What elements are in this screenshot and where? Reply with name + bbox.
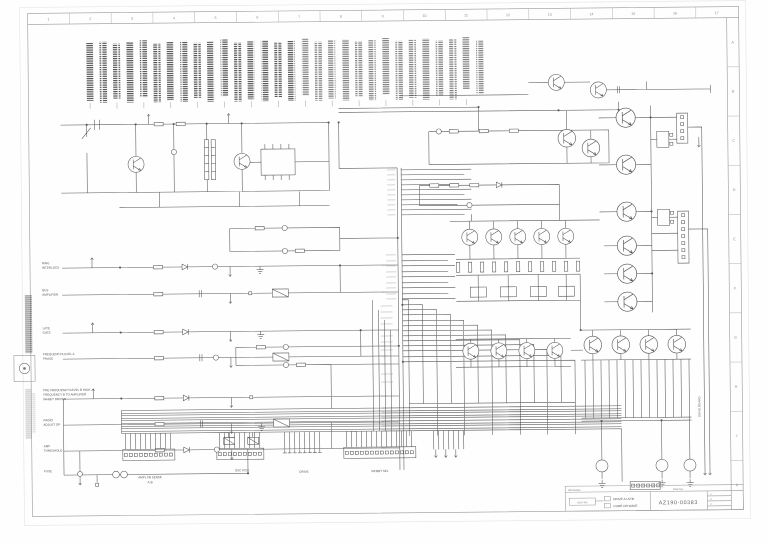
signal-stripes — [86, 37, 484, 109]
revision-entry: B — [710, 499, 712, 501]
signal-label: RING — [42, 261, 50, 265]
grid-letter: H — [735, 385, 738, 389]
grid-letter: A — [731, 40, 734, 44]
grid-number: 5 — [215, 16, 217, 20]
connector-labels: AMPL FB SENSE A-B OSC PICK DRIVE INHIBIT… — [138, 467, 389, 484]
grid-number: 1 — [48, 18, 50, 22]
grid-letter: B — [732, 90, 735, 94]
grid-number: 7 — [298, 15, 300, 19]
grid-number: 14 — [589, 12, 593, 16]
side-note: DRIVE BOARD — [697, 395, 701, 417]
revision-entry: A — [710, 493, 712, 496]
terminals — [92, 116, 694, 493]
signal-label: GATE — [43, 331, 51, 335]
grid-number: 9 — [382, 14, 384, 18]
grid-number: 12 — [506, 13, 510, 17]
scanned-schematic-page: 1 2 3 4 5 6 7 8 9 10 11 12 13 14 15 16 1… — [0, 0, 768, 543]
grid-letter: J — [736, 434, 738, 438]
grid-number: 4 — [173, 16, 175, 20]
left-signal-labels: RING INTERLOCK BUS AMPLIFIER LATE GATE F… — [42, 261, 91, 473]
signal-label: THRESHOLD — [44, 449, 63, 453]
grid-number: 3 — [131, 17, 133, 21]
grid-letter: K — [736, 483, 739, 487]
title-block: REVISIONS DWG NO. ASSY NO DRIVE A LSTB C… — [565, 485, 743, 512]
fold-ruler — [24, 295, 35, 438]
diodes-caps — [180, 86, 623, 452]
signal-label: LATE — [43, 326, 50, 330]
drawing-number: AZ190-00383 — [659, 500, 698, 506]
grid-number: 16 — [673, 11, 677, 15]
schematic-sheet-scan: 1 2 3 4 5 6 7 8 9 10 11 12 13 14 15 16 1… — [0, 0, 768, 543]
signal-label: INTERLOCK — [42, 266, 59, 270]
signal-label: AMP — [44, 444, 51, 448]
grid-letter: F — [734, 286, 737, 290]
grid-letter: D — [733, 188, 736, 192]
signal-label: AMPLIFIER — [42, 293, 59, 297]
connector-label: INHIBIT SEL — [371, 469, 388, 473]
grid-number: 6 — [256, 16, 258, 20]
title-block-header: REVISIONS — [568, 490, 581, 492]
grid-strip-top: 1 2 3 4 5 6 7 8 9 10 11 12 13 14 15 16 1… — [48, 11, 719, 21]
signal-label: RADIO — [43, 418, 53, 422]
circuit-linework — [60, 73, 714, 495]
punch-mark — [14, 355, 35, 381]
small-parts — [74, 126, 696, 477]
grid-letter: G — [734, 336, 737, 340]
connector-label: DRIVE — [299, 470, 308, 474]
grid-number: 11 — [464, 13, 468, 17]
grid-letter: E — [733, 237, 736, 241]
resistors — [152, 118, 581, 451]
signal-label: INHIBIT DRIVER — [43, 397, 67, 401]
connector-label-sub: A-B — [148, 480, 153, 484]
transistors — [127, 73, 686, 362]
signal-label: FUSE — [44, 469, 52, 473]
connector-label: AMPL FB SENSE — [138, 475, 162, 479]
signal-label: ADJUST OP — [44, 423, 61, 427]
grid-number: 15 — [631, 12, 635, 16]
grid-number: 13 — [548, 13, 552, 17]
grid-number: 10 — [422, 14, 426, 18]
grid-number: 8 — [340, 15, 342, 19]
signal-label: BUS — [42, 288, 48, 292]
signal-label: PHASE — [43, 357, 53, 361]
signal-label: FREQUENCY/LEVEL A — [43, 352, 75, 356]
title-block-dwg-header: DWG NO. — [673, 489, 684, 491]
grid-number: 17 — [715, 11, 719, 15]
grid-letter: C — [732, 139, 735, 143]
title-line-1: DRIVE A LSTB — [613, 497, 634, 501]
connector-label: OSC PICK — [235, 468, 249, 472]
grid-number: 2 — [89, 17, 91, 21]
title-line-2: CORE OR WAVE — [613, 504, 637, 508]
revision-entry: C — [710, 504, 712, 506]
assy-box-label: ASSY NO — [577, 501, 587, 504]
